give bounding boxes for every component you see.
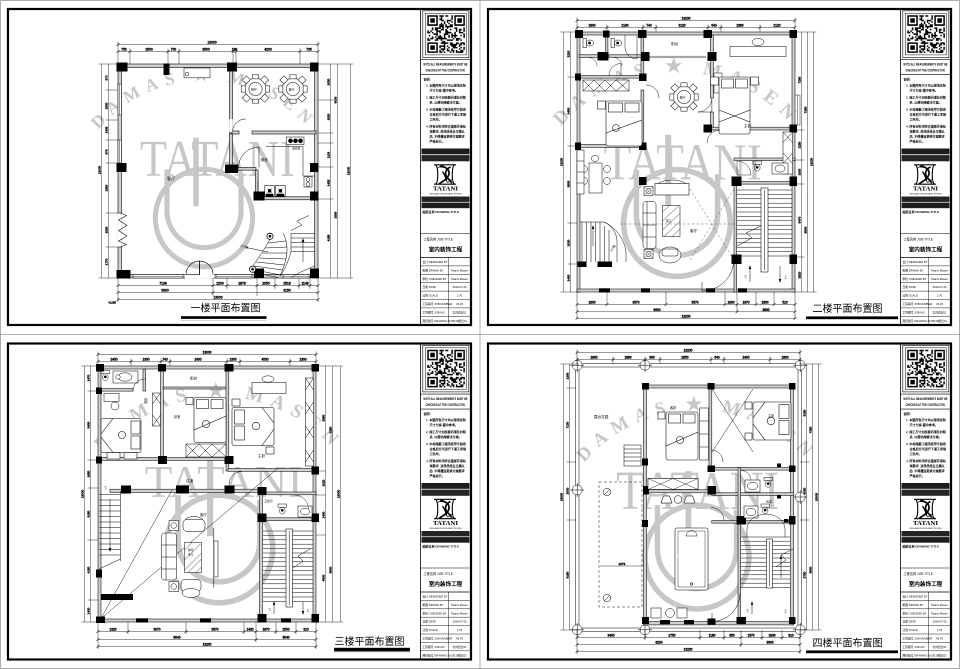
svg-text:下: 下 — [104, 486, 107, 490]
svg-text:8200: 8200 — [655, 641, 662, 645]
svg-text:3570: 3570 — [691, 301, 698, 305]
svg-text:13000: 13000 — [347, 166, 351, 175]
svg-text:1800: 1800 — [105, 102, 109, 109]
svg-text:一楼平面布置图: 一楼平面布置图 — [191, 302, 261, 315]
svg-text:9600: 9600 — [653, 308, 660, 312]
svg-text:3570: 3570 — [632, 301, 639, 305]
svg-text:1860: 1860 — [590, 356, 597, 360]
svg-text:1300: 1300 — [566, 372, 570, 379]
svg-text:5470: 5470 — [798, 216, 802, 223]
svg-text:2073: 2073 — [619, 562, 626, 566]
svg-text:3500: 3500 — [202, 48, 210, 52]
svg-text:吧台: 吧台 — [193, 71, 199, 76]
svg-text:13000: 13000 — [207, 41, 216, 45]
svg-text:2200: 2200 — [216, 282, 224, 286]
svg-text:客卧: 客卧 — [670, 405, 677, 410]
svg-text:新中式茶台桌凳: 新中式茶台桌凳 — [677, 553, 697, 558]
svg-text:1300: 1300 — [299, 358, 306, 362]
svg-text:13200: 13200 — [682, 17, 691, 21]
svg-text:衣柜: 衣柜 — [199, 449, 205, 453]
svg-text:700: 700 — [171, 48, 177, 52]
svg-text:2850: 2850 — [681, 356, 688, 360]
svg-text:1800: 1800 — [727, 301, 734, 305]
svg-text:13200: 13200 — [560, 157, 564, 166]
svg-text:上: 上 — [784, 274, 787, 279]
svg-text:次卧: 次卧 — [143, 397, 148, 404]
svg-text:2050: 2050 — [262, 282, 270, 286]
svg-text:-0.150: -0.150 — [108, 301, 116, 305]
svg-text:鞋柜: 鞋柜 — [261, 157, 268, 162]
svg-text:640: 640 — [714, 356, 720, 360]
svg-text:1470: 1470 — [87, 374, 91, 381]
svg-text:7138: 7138 — [159, 282, 167, 286]
svg-text:1800: 1800 — [798, 168, 802, 175]
svg-text:三楼平面布置图: 三楼平面布置图 — [335, 635, 405, 648]
svg-text:640: 640 — [711, 24, 717, 28]
svg-text:13000: 13000 — [81, 489, 85, 498]
svg-text:2400: 2400 — [194, 358, 201, 362]
svg-text:1180: 1180 — [709, 634, 716, 638]
svg-text:675: 675 — [105, 149, 109, 154]
svg-text:1800: 1800 — [327, 113, 331, 120]
svg-text:1870: 1870 — [262, 628, 269, 632]
svg-text:13200: 13200 — [684, 648, 693, 652]
svg-text:阳台: 阳台 — [190, 376, 198, 381]
svg-text:卫生间: 卫生间 — [264, 499, 273, 503]
svg-text:四楼平面布置图: 四楼平面布置图 — [813, 637, 883, 650]
svg-text:1400: 1400 — [322, 511, 326, 518]
svg-text:1800: 1800 — [588, 24, 595, 28]
svg-text:1800: 1800 — [781, 356, 788, 360]
svg-text:1880: 1880 — [624, 356, 631, 360]
svg-text:850: 850 — [729, 634, 735, 638]
svg-text:5900: 5900 — [804, 226, 808, 233]
svg-text:上: 上 — [307, 607, 310, 612]
svg-text:1970: 1970 — [747, 634, 754, 638]
svg-text:13000: 13000 — [203, 351, 212, 355]
svg-text:2518: 2518 — [283, 282, 291, 286]
svg-text:主卧: 主卧 — [258, 453, 266, 458]
svg-text:6150: 6150 — [566, 571, 570, 578]
svg-text:740: 740 — [162, 358, 168, 362]
svg-text:4500: 4500 — [261, 358, 268, 362]
svg-text:1148: 1148 — [301, 282, 308, 286]
svg-text:餐厅: 餐厅 — [289, 87, 295, 92]
svg-text:5550: 5550 — [322, 414, 326, 421]
svg-text:餐厅: 餐厅 — [251, 87, 257, 92]
svg-text:台盆: 台盆 — [766, 499, 772, 504]
svg-text:1800: 1800 — [588, 301, 595, 305]
svg-text:15000: 15000 — [815, 492, 819, 501]
svg-text:1320: 1320 — [109, 628, 116, 632]
svg-text:3400: 3400 — [607, 634, 614, 638]
svg-text:750: 750 — [121, 48, 127, 52]
svg-text:1400: 1400 — [87, 607, 91, 614]
svg-text:6150: 6150 — [803, 409, 807, 416]
svg-text:1830: 1830 — [768, 634, 775, 638]
svg-text:上: 上 — [784, 608, 787, 613]
svg-text:主卧: 主卧 — [768, 413, 775, 418]
svg-text:1300: 1300 — [142, 358, 149, 362]
svg-text:13200: 13200 — [682, 315, 691, 319]
svg-text:670: 670 — [105, 75, 109, 80]
svg-text:1430: 1430 — [246, 628, 253, 632]
svg-text:3800: 3800 — [567, 180, 571, 187]
svg-text:过道: 过道 — [186, 478, 194, 483]
svg-text:6300: 6300 — [161, 289, 169, 293]
svg-text:6000: 6000 — [334, 96, 338, 103]
svg-text:6750: 6750 — [803, 571, 807, 578]
svg-text:阳台: 阳台 — [671, 41, 679, 46]
svg-text:5900: 5900 — [809, 566, 813, 573]
svg-text:4600: 4600 — [322, 574, 326, 581]
svg-text:下: 下 — [744, 275, 747, 279]
svg-text:茶几: 茶几 — [666, 219, 672, 223]
svg-text:4203: 4203 — [264, 48, 272, 52]
svg-text:TATANI: TATANI — [140, 131, 295, 188]
svg-text:TATANI: TATANI — [145, 457, 303, 507]
svg-text:1970: 1970 — [742, 301, 749, 305]
svg-text:3150: 3150 — [283, 289, 291, 293]
svg-text:2000: 2000 — [567, 239, 571, 246]
svg-text:7290: 7290 — [809, 426, 813, 433]
svg-text:5900: 5900 — [329, 566, 333, 573]
svg-text:1400: 1400 — [567, 274, 571, 281]
svg-text:2050: 2050 — [327, 78, 331, 85]
svg-text:餐厅: 餐厅 — [680, 95, 686, 100]
svg-text:740: 740 — [646, 24, 652, 28]
svg-text:休闲: 休闲 — [188, 548, 194, 552]
svg-text:735: 735 — [306, 48, 312, 52]
svg-text:5400: 5400 — [87, 421, 91, 428]
svg-text:3070: 3070 — [153, 628, 160, 632]
svg-text:510: 510 — [782, 301, 788, 305]
svg-text:7290: 7290 — [329, 426, 333, 433]
svg-text:2878: 2878 — [238, 282, 246, 286]
svg-text:1850: 1850 — [87, 470, 91, 477]
svg-text:3400: 3400 — [567, 107, 571, 114]
svg-text:3040: 3040 — [282, 636, 289, 640]
svg-text:1830: 1830 — [105, 226, 109, 233]
svg-text:13000: 13000 — [98, 165, 102, 174]
svg-text:13200: 13200 — [684, 349, 693, 353]
svg-text:客厅: 客厅 — [200, 512, 207, 517]
svg-text:8150: 8150 — [87, 510, 91, 517]
svg-text:2620: 2620 — [798, 271, 802, 278]
svg-text:2120: 2120 — [773, 24, 780, 28]
svg-text:露台花园: 露台花园 — [594, 414, 609, 419]
svg-text:3600: 3600 — [762, 308, 769, 312]
svg-text:2500: 2500 — [282, 628, 289, 632]
svg-text:2000: 2000 — [566, 487, 570, 494]
svg-text:8040: 8040 — [173, 636, 180, 640]
svg-text:3600: 3600 — [766, 641, 773, 645]
svg-text:2250: 2250 — [798, 141, 802, 148]
svg-text:客厅: 客厅 — [690, 228, 698, 233]
svg-text:7100: 7100 — [566, 421, 570, 428]
svg-text:1408: 1408 — [105, 126, 109, 133]
svg-text:主卧: 主卧 — [744, 123, 752, 128]
svg-text:3120: 3120 — [678, 24, 685, 28]
svg-text:2380: 2380 — [736, 24, 743, 28]
svg-text:15300: 15300 — [560, 492, 564, 501]
svg-text:卧室: 卧室 — [174, 414, 180, 419]
svg-text:310: 310 — [303, 628, 309, 632]
svg-text:1860: 1860 — [761, 301, 768, 305]
svg-text:2600: 2600 — [334, 211, 338, 218]
svg-text:1300: 1300 — [229, 358, 236, 362]
svg-text:2200: 2200 — [567, 50, 571, 57]
svg-text:13200: 13200 — [810, 157, 814, 166]
svg-text:13000: 13000 — [213, 296, 222, 300]
svg-text:客厅: 客厅 — [167, 175, 175, 182]
svg-text:2500: 2500 — [145, 48, 153, 52]
svg-text:二楼平面布置图: 二楼平面布置图 — [813, 302, 883, 315]
svg-text:1770: 1770 — [105, 258, 109, 265]
svg-text:2180: 2180 — [621, 24, 628, 28]
svg-text:2750: 2750 — [668, 634, 675, 638]
svg-text:4150: 4150 — [87, 566, 91, 573]
svg-text:13000: 13000 — [337, 489, 341, 498]
svg-text:7290: 7290 — [798, 76, 802, 83]
svg-text:1103: 1103 — [327, 151, 331, 158]
svg-text:7290: 7290 — [804, 106, 808, 113]
svg-text:4188: 4188 — [327, 234, 331, 241]
svg-text:1425: 1425 — [327, 179, 331, 186]
svg-text:洗衣机: 洗衣机 — [292, 147, 301, 151]
svg-text:1090: 1090 — [803, 487, 807, 494]
svg-text:2400: 2400 — [110, 358, 117, 362]
svg-text:910: 910 — [788, 634, 794, 638]
svg-text:下: 下 — [268, 608, 271, 612]
svg-text:2350: 2350 — [105, 184, 109, 191]
svg-text:下: 下 — [746, 609, 749, 613]
svg-text:茶几: 茶几 — [188, 553, 194, 557]
svg-text:1020: 1020 — [322, 479, 326, 486]
svg-text:2400: 2400 — [742, 356, 749, 360]
svg-text:960: 960 — [649, 356, 655, 360]
svg-text:3670: 3670 — [211, 628, 218, 632]
svg-text:13200: 13200 — [203, 643, 212, 647]
